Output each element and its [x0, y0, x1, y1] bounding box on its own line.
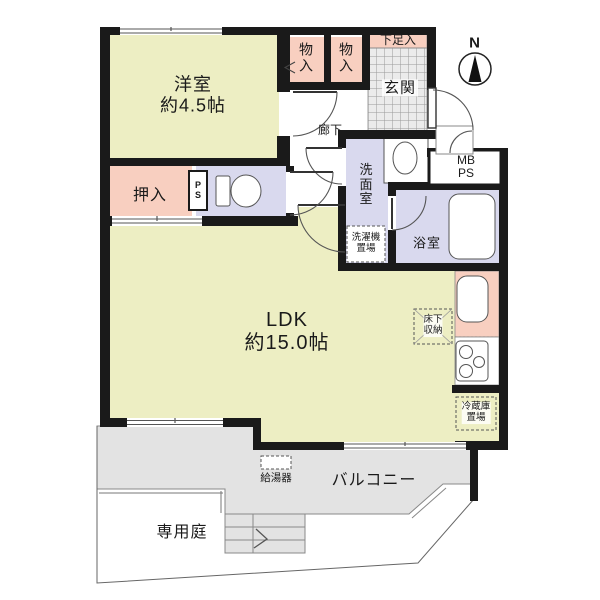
window-ldk-right — [344, 442, 466, 450]
washroom-label: 洗面室 — [359, 163, 374, 207]
garden-fence — [99, 491, 223, 513]
washer-space-label: 洗濯機 置場 — [352, 233, 381, 255]
closet-label: 押入 — [133, 187, 167, 205]
window-ldk-left — [127, 418, 223, 427]
compass-north-icon — [459, 53, 491, 85]
toilet-fixture — [216, 175, 261, 207]
hallway-label: 廊下 — [318, 124, 342, 138]
western-room-label: 洋室 約4.5帖 — [160, 74, 226, 115]
balcony-label: バルコニー — [332, 472, 417, 490]
ps-label: PS — [457, 167, 475, 180]
entrance-label: 玄関 — [382, 79, 418, 96]
refrigerator-space-label: 冷蔵庫 置場 — [462, 402, 491, 424]
storage-2-label: 物入 — [338, 42, 354, 73]
floorplan-drawing — [0, 0, 600, 600]
pipe-shaft-label: PS — [193, 180, 203, 200]
ldk-label: LDK 約15.0帖 — [245, 309, 330, 355]
bathroom-label: 浴室 — [413, 237, 441, 252]
compass-north-label: N — [469, 34, 481, 51]
kitchen-sink-fixture — [457, 276, 488, 322]
water-heater-label: 給湯器 — [260, 472, 292, 484]
ldk-size: 約15.0帖 — [245, 332, 330, 355]
water-heater-box — [261, 456, 291, 469]
closet-sliding-door — [112, 216, 202, 226]
kitchen-counter — [455, 271, 499, 385]
western-room-name: 洋室 — [160, 74, 226, 95]
window-western-room — [120, 27, 222, 35]
washbasin-fixture — [384, 135, 428, 183]
underfloor-storage-label: 床下 収納 — [423, 315, 442, 337]
private-garden-label: 専用庭 — [156, 524, 207, 542]
door-washroom — [306, 148, 342, 184]
floor-plan: 洋室 約4.5帖 LDK 約15.0帖 押入 物入 物入 下足入 玄関 廊下 洗… — [0, 0, 600, 600]
western-room-size: 約4.5帖 — [160, 95, 226, 116]
shoe-box-label: 下足入 — [380, 34, 416, 48]
ldk-name: LDK — [245, 309, 330, 332]
storage-1-label: 物入 — [298, 42, 314, 73]
stairs — [225, 514, 305, 553]
entrance-door — [428, 88, 473, 154]
meter-pipe-shaft-label: MB PS — [457, 154, 475, 180]
bathtub-fixture — [449, 194, 495, 259]
stove-fixture — [456, 341, 488, 381]
